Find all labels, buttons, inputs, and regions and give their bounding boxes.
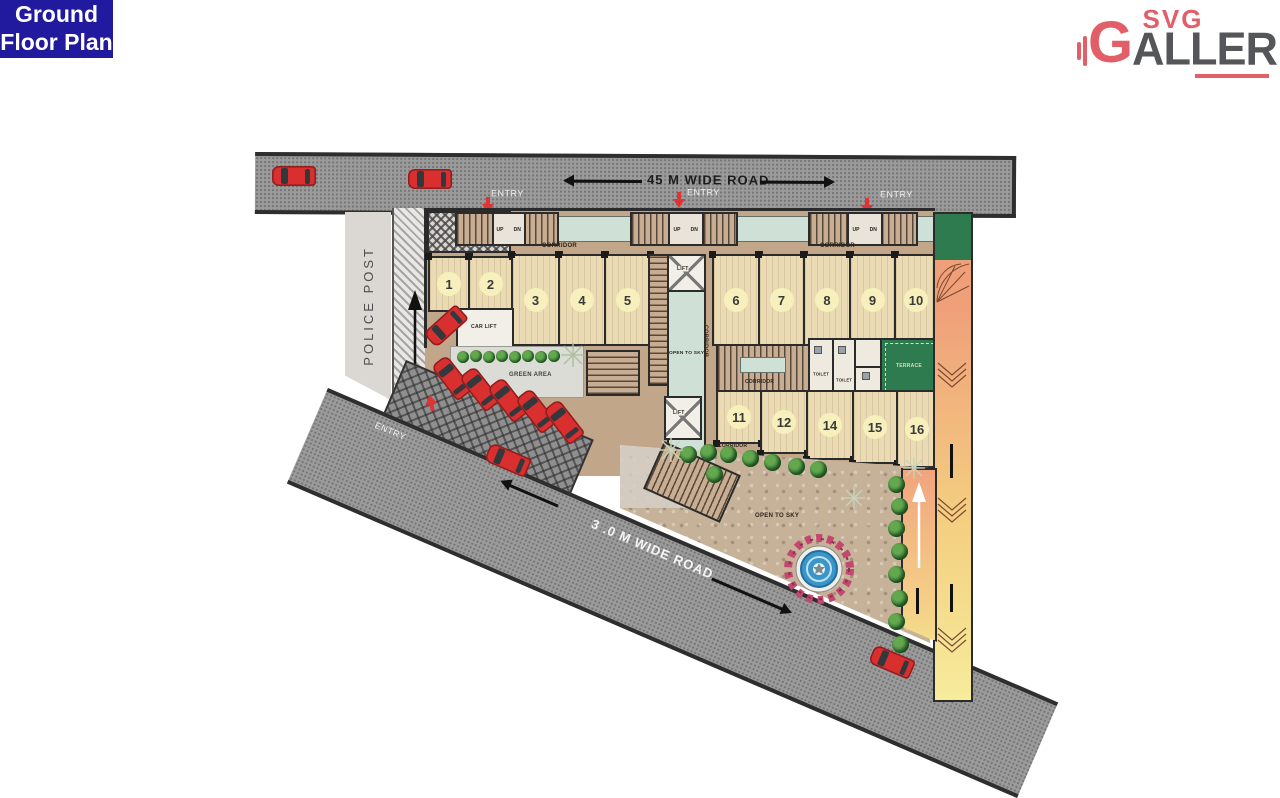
tree xyxy=(764,454,781,471)
stair-landing: UP DN xyxy=(668,214,703,244)
tree xyxy=(891,498,908,515)
dn-label: DN xyxy=(691,226,698,232)
unit-number: 6 xyxy=(724,288,748,312)
unit-number: 4 xyxy=(570,288,594,312)
unit-number: 5 xyxy=(616,288,640,312)
palm-icon xyxy=(658,437,684,463)
tree xyxy=(720,446,737,463)
toilet-block: TOILET TOILET xyxy=(808,338,882,394)
up-label: UP xyxy=(853,226,860,232)
shop-unit: 12 xyxy=(760,390,808,454)
logo-bar-icon xyxy=(1077,42,1081,60)
lift-room xyxy=(667,254,706,292)
shop-unit: 11 xyxy=(716,390,762,444)
police-post: POLICE POST xyxy=(345,212,391,400)
unit-number: 8 xyxy=(815,288,839,312)
shop-unit: 2 xyxy=(468,256,513,312)
corridor-label: CORRIDOR xyxy=(745,379,774,385)
logo-initial: G xyxy=(1088,14,1133,72)
palm-icon xyxy=(902,456,926,480)
green-area-label: GREEN AREA xyxy=(509,371,552,378)
shop-unit: 8 xyxy=(803,254,851,346)
corridor-label: CORRIDOR xyxy=(820,242,855,249)
entry-label: ENTRY xyxy=(373,420,407,442)
unit-number: 1 xyxy=(437,272,461,296)
shop-unit: 9 xyxy=(849,254,896,346)
corridor-label: CORRIDOR xyxy=(542,242,577,249)
stair-landing: UP DN xyxy=(847,214,883,244)
entry-label: ENTRY xyxy=(880,189,913,199)
arrow-left-icon xyxy=(566,180,642,183)
ramp-strip xyxy=(933,212,973,702)
palm-icon xyxy=(560,342,586,368)
logo-bar-icon xyxy=(1083,36,1087,66)
tree xyxy=(892,636,909,653)
entry-arrow-icon xyxy=(673,192,685,209)
corridor-label: CORRIDOR xyxy=(703,325,709,357)
ramp-marking xyxy=(950,584,953,612)
shop-unit: 15 xyxy=(852,390,898,464)
terrace: TERRACE xyxy=(880,338,939,396)
chevron-icon xyxy=(936,359,968,389)
dn-label: DN xyxy=(870,226,877,232)
up-label: UP xyxy=(497,226,504,232)
car-lift-label: CAR LIFT xyxy=(471,324,497,330)
shop-unit: 4 xyxy=(558,254,606,346)
unit-number: 11 xyxy=(727,405,751,429)
tree xyxy=(810,461,827,478)
tree xyxy=(891,590,908,607)
top-road-label: 45 M WIDE ROAD xyxy=(647,172,769,188)
arrow-right-icon xyxy=(711,577,789,613)
dn-label: DN xyxy=(514,226,521,232)
shop-unit: 10 xyxy=(894,254,938,346)
unit-number: 15 xyxy=(863,415,887,439)
shop-unit: 14 xyxy=(806,390,854,460)
logo-name: ALLERIA xyxy=(1132,25,1280,72)
entry-stairs: UP DN xyxy=(455,212,559,246)
shop-unit: 1 xyxy=(428,256,470,312)
title-line2: Floor Plan xyxy=(0,28,113,56)
tree xyxy=(788,458,805,475)
toilet-label: TOILET xyxy=(813,372,829,377)
shop-unit: 5 xyxy=(604,254,651,346)
entry-stairs: UP DN xyxy=(630,212,738,246)
entry-stairs: UP DN xyxy=(808,212,918,246)
ramp-marking xyxy=(950,444,953,478)
tree xyxy=(888,566,905,583)
unit-number: 2 xyxy=(479,272,503,296)
entry-label: ENTRY xyxy=(491,188,524,198)
unit-number: 3 xyxy=(524,288,548,312)
lift-label: LIFT xyxy=(673,410,685,416)
chevron-icon xyxy=(936,624,968,654)
stair-landing: UP DN xyxy=(492,214,526,244)
car xyxy=(272,166,316,186)
brand-logo: SVG G ALLERIA xyxy=(1075,4,1275,82)
tree xyxy=(706,466,723,483)
tree xyxy=(700,444,717,461)
tree xyxy=(888,613,905,630)
shop-unit: 7 xyxy=(758,254,805,346)
open-to-sky-label: OPEN TO SKY xyxy=(755,512,799,519)
service-stairs xyxy=(716,344,810,392)
core-stairs xyxy=(648,254,669,386)
title-badge: Ground Floor Plan xyxy=(0,0,113,58)
unit-number: 14 xyxy=(818,413,842,437)
arrow-right-icon xyxy=(760,181,832,184)
stair-well xyxy=(740,357,786,373)
palm-icon xyxy=(842,486,866,510)
green-patch xyxy=(935,214,971,262)
unit-number: 9 xyxy=(861,288,885,312)
tree xyxy=(891,543,908,560)
unit-number: 12 xyxy=(772,410,796,434)
tree xyxy=(742,450,759,467)
unit-number: 16 xyxy=(905,417,929,441)
up-label: UP xyxy=(674,226,681,232)
title-line1: Ground xyxy=(0,0,113,28)
ramp-up-arrow-icon xyxy=(909,482,929,572)
shop-unit: 3 xyxy=(511,254,560,346)
ramp-body xyxy=(935,304,971,700)
lift-room xyxy=(664,396,702,440)
lift-label: LIFT xyxy=(677,266,689,272)
terrace-label: TERRACE xyxy=(896,363,922,369)
entry-label: ENTRY xyxy=(687,187,720,197)
toilet-label: TOILET xyxy=(836,378,852,383)
shop-unit: 6 xyxy=(712,254,760,346)
open-to-sky-label: OPEN TO SKY xyxy=(669,350,704,355)
unit-number: 7 xyxy=(770,288,794,312)
unit-number: 10 xyxy=(904,288,928,312)
car xyxy=(408,169,452,189)
logo-underline xyxy=(1195,74,1269,78)
tree xyxy=(888,520,905,537)
arrow-left-icon xyxy=(502,481,558,507)
police-post-label: POLICE POST xyxy=(361,246,376,366)
fountain xyxy=(782,532,856,606)
garden-stairs xyxy=(586,350,640,396)
spiral-ramp-icon xyxy=(935,260,971,305)
chevron-icon xyxy=(936,494,968,524)
ramp-marking xyxy=(916,588,919,614)
